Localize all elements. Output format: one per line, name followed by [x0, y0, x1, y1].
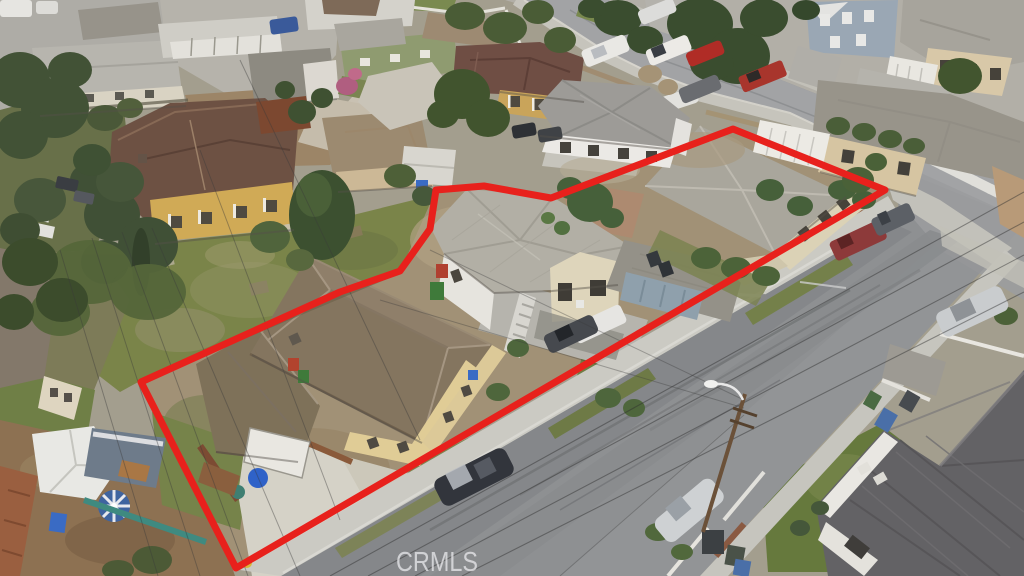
- svg-text:CRMLS: CRMLS: [396, 546, 478, 576]
